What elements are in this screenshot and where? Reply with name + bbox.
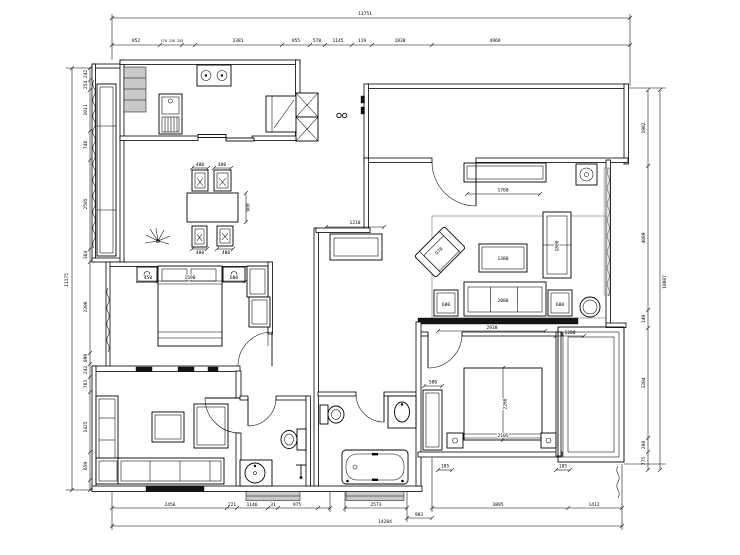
dim-left-11: 659 (83, 462, 89, 471)
dim-left-4: 2505 (83, 198, 89, 209)
dim-left-0: 242 (83, 70, 89, 79)
master-door[interactable] (238, 332, 272, 366)
dim-bed2-length: 2268 (503, 398, 509, 409)
bathroom-master-door[interactable] (356, 394, 384, 422)
dining-table (187, 193, 238, 222)
dim-right-4: 260 (641, 441, 647, 450)
plant-icon (145, 228, 170, 244)
bathroom-guest-door[interactable] (248, 398, 276, 426)
basin-icon (240, 460, 272, 486)
dim-bottom-overall: 14204 (378, 519, 392, 525)
dim-bot-1: 221 (228, 502, 237, 508)
dim-master-bed: 1590 (184, 275, 195, 281)
dim-top-4: 578 (313, 38, 322, 44)
dim-bot-4: 975 (293, 502, 302, 508)
dim-wardrobe2: 580 (429, 380, 438, 386)
dim-right-5: 775 (641, 457, 647, 466)
threshold (146, 486, 204, 492)
dim-coffee-table: 1380 (497, 256, 508, 262)
dim-nightstand-right: 600 (230, 275, 239, 281)
dim-bot-2: 1146 (246, 502, 257, 508)
dim-chair-2: 480 (218, 162, 227, 168)
dim-gap-left: 185 (441, 464, 450, 470)
dim-left-5: 364 (83, 251, 89, 260)
dim-right-0: 1982 (641, 122, 647, 133)
armchair: 970 (415, 227, 466, 278)
dim-living-floor: 2938 (486, 325, 497, 331)
dim-table-depth: 900 (246, 203, 252, 212)
bathroom-master (320, 394, 416, 484)
dim-gap-right: 185 (559, 464, 568, 470)
pipe-icon (337, 113, 341, 117)
dim-right-3: 3304 (641, 377, 647, 388)
nightstand (447, 433, 463, 448)
nightstand (541, 433, 556, 448)
master-bedroom: 450 1590 600 (136, 266, 272, 372)
dim-bot-8: 1412 (588, 502, 599, 508)
dim-chair-3: 480 (196, 250, 205, 256)
dim-top-6: 119 (358, 38, 367, 44)
dim-top-7: 1838 (394, 38, 405, 44)
dim-left-2: 1011 (83, 104, 89, 115)
dim-left-3: 748 (83, 141, 89, 150)
dim-left-1: 254 (83, 81, 89, 90)
dim-bot-3: 31 (270, 502, 276, 508)
dim-bot-6: 983 (415, 512, 424, 518)
dim-end-table-left: 600 (442, 302, 451, 308)
dim-left-10: 1425 (83, 421, 89, 432)
window-column (604, 168, 610, 295)
sliding-panel (178, 367, 194, 372)
dining-chair (192, 170, 208, 191)
dim-right-1: 4089 (641, 232, 647, 243)
bathroom-guest (240, 398, 306, 486)
family-room (96, 396, 240, 492)
dim-top-2: 3381 (232, 38, 243, 44)
floor-drain-icon (296, 465, 306, 479)
toilet-icon (281, 429, 306, 450)
toilet-icon (320, 405, 344, 424)
dim-tv-cabinet: 1760 (497, 188, 508, 194)
exterior-sills (246, 492, 404, 501)
dim-right-overall: 10807 (662, 275, 668, 289)
bathtub-icon (342, 450, 408, 484)
pipe-icon (342, 113, 346, 117)
basin-icon (388, 396, 416, 428)
dining-chair (217, 226, 233, 246)
fridge-icon (266, 96, 298, 132)
dim-chair-1: 480 (196, 162, 205, 168)
dining-area: 480 480 480 480 900 (145, 162, 252, 256)
dim-living-right: 1200 (564, 330, 575, 336)
kitchen-cabinet (124, 67, 146, 112)
bedroom-2: 580 2268 2105 185 185 (423, 334, 570, 470)
dim-right-2: 149 (641, 315, 647, 324)
dim-end-table-right: 600 (556, 302, 565, 308)
sofa-bottom (118, 458, 224, 484)
window-wave (617, 466, 619, 498)
dim-top-8: 4969 (489, 38, 500, 44)
dim-left-8: 242 (83, 366, 89, 375)
dim-sofa: 2080 (497, 298, 508, 304)
desk (194, 404, 228, 448)
dim-top-3: 955 (292, 38, 301, 44)
sofa-left (96, 396, 118, 462)
sliding-panel (136, 367, 152, 372)
dim-bed2-width: 2105 (497, 433, 508, 439)
hallway: 1210 (326, 96, 384, 260)
dim-left-7: 899 (83, 354, 89, 363)
dim-bot-7: 3895 (492, 502, 503, 508)
kitchen-sliding-door[interactable] (198, 135, 254, 142)
sliding-panel (208, 367, 218, 372)
dim-bot-0: 2456 (164, 502, 175, 508)
bedroom-2-door[interactable] (428, 334, 462, 368)
sofa-corner (96, 458, 120, 484)
floor-plan-canvas: 13751 952 170 226 253 3381 955 578 1145 … (0, 0, 740, 555)
living-room: 1760 970 1380 1800 2080 600 (415, 162, 606, 336)
dim-bot-5: 2573 (370, 502, 381, 508)
dim-top-0: 952 (132, 38, 141, 44)
round-table (580, 297, 600, 317)
side-table (152, 412, 184, 442)
service-balcony (97, 84, 116, 256)
kitchen (124, 65, 318, 141)
washing-machine-icon (576, 164, 597, 185)
dim-top-5: 1145 (332, 38, 343, 44)
sink-icon (159, 94, 182, 134)
wardrobe (247, 266, 270, 346)
dim-left-6: 2306 (83, 301, 89, 312)
dim-left-9: 763 (83, 380, 89, 389)
dim-side-sofa: 1800 (555, 240, 561, 251)
dining-chair (214, 170, 231, 191)
duct-shaft-icon (296, 93, 318, 141)
dim-hall-cabinet: 1210 (349, 220, 360, 226)
dining-chair (192, 226, 207, 247)
stove-icon (197, 65, 231, 86)
dim-chair-4: 480 (222, 250, 231, 256)
dim-nightstand-left: 450 (144, 275, 153, 281)
dim-top-1: 170 226 253 (161, 39, 183, 43)
dim-left-overall: 11175 (64, 273, 70, 287)
dim-top-overall: 13751 (358, 11, 372, 17)
wardrobe (423, 390, 442, 450)
balcony-south (558, 327, 624, 462)
